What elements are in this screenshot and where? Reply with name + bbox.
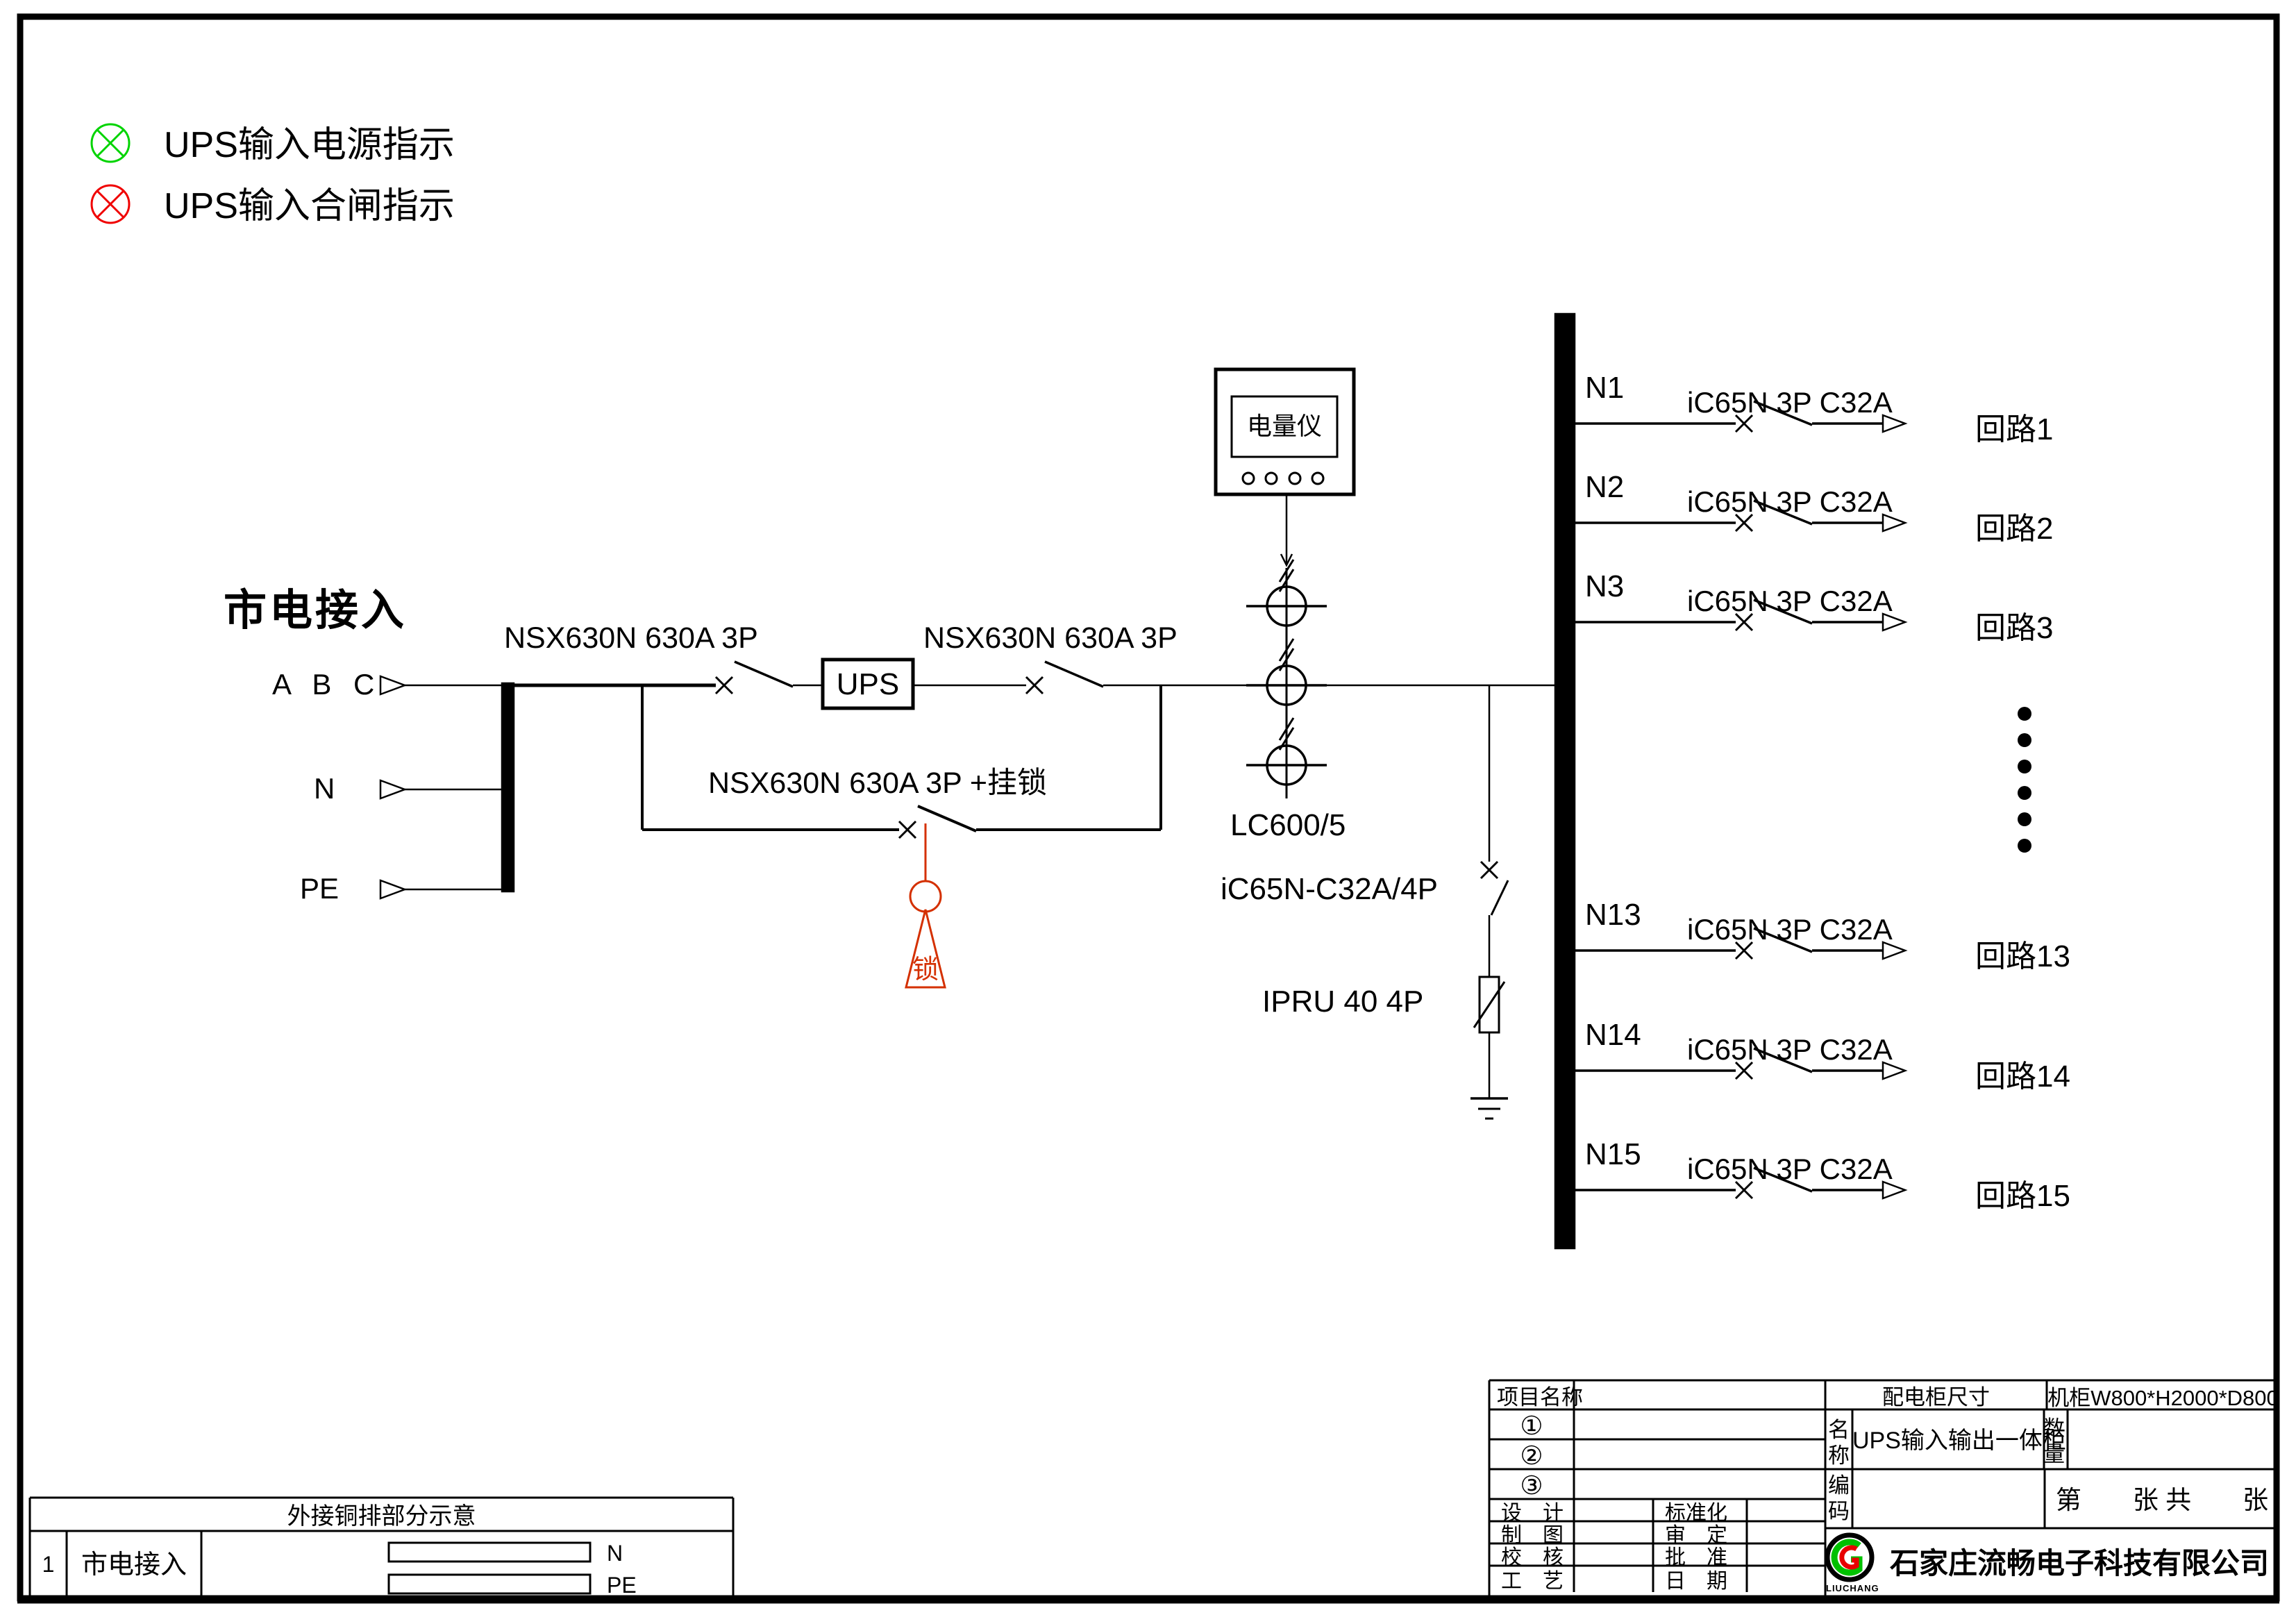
breaker-arm-icon — [918, 806, 976, 831]
power-meter-label: 电量仪 — [1232, 412, 1337, 440]
company-logo-text: LIUCHANG — [1826, 1584, 1879, 1594]
design-label: 设 计 — [1501, 1502, 1564, 1525]
company-name: 石家庄流畅电子科技有限公司 — [1890, 1547, 2269, 1580]
rev2-label: ② — [1489, 1441, 1574, 1470]
breaker-arm-icon — [735, 662, 793, 687]
arrow-pe-icon — [380, 880, 405, 898]
rev3-label: ③ — [1489, 1471, 1574, 1500]
copper-table-row-no: 1 — [30, 1552, 67, 1577]
branch-circuit: 回路13 — [1975, 939, 2070, 973]
branch-breaker: iC65N 3P C32A — [1687, 1033, 1893, 1066]
input-breaker-label: NSX630N 630A 3P — [504, 621, 758, 655]
branch-id: N3 — [1585, 569, 1624, 603]
phase-abc-label: A B C — [272, 668, 381, 701]
qty-label: 数量 — [2043, 1416, 2070, 1467]
arrow-n-icon — [380, 780, 405, 798]
breaker-x-icon — [899, 821, 916, 838]
bypass-breaker-label: NSX630N 630A 3P +挂锁 — [708, 767, 1047, 800]
source-input-arrows — [380, 676, 502, 898]
rev1-label: ① — [1489, 1412, 1574, 1440]
draft-label: 制 图 — [1501, 1524, 1564, 1548]
branch-id: N14 — [1585, 1018, 1641, 1052]
company-logo-icon — [1827, 1535, 1872, 1580]
copper-bar-n — [389, 1543, 590, 1562]
arrow-abc-icon — [380, 676, 405, 694]
copper-bar-n-label: N — [607, 1541, 623, 1566]
ct-label: LC600/5 — [1230, 808, 1346, 842]
page-border — [20, 17, 2277, 1598]
padlock-char: 锁 — [912, 955, 939, 985]
legend-power-indicator-label: UPS输入电源指示 — [164, 125, 455, 165]
mains-input-title: 市电接入 — [224, 587, 407, 635]
input-breaker — [514, 662, 823, 694]
cabinet-size-label: 配电柜尺寸 — [1825, 1386, 2047, 1410]
copper-table-row-label: 市电接入 — [67, 1550, 201, 1580]
copper-bar-pe — [389, 1575, 590, 1593]
branch-breaker: iC65N 3P C32A — [1687, 585, 1893, 617]
standard-label: 标准化 — [1665, 1502, 1727, 1525]
more-circuits-dots — [2018, 707, 2031, 853]
earth-ground-icon — [1470, 1098, 1508, 1119]
branch-id: N13 — [1585, 898, 1641, 932]
output-breaker — [913, 662, 1555, 694]
spd-breaker-label: iC65N-C32A/4P — [1221, 872, 1438, 906]
indicator-lamp-red-icon — [92, 185, 129, 223]
output-busbar — [1555, 314, 1575, 1248]
branch-id: N15 — [1585, 1137, 1641, 1171]
date-label: 日 期 — [1665, 1570, 1727, 1593]
code-label: 编码 — [1828, 1473, 1854, 1524]
ups-label: UPS — [823, 667, 913, 701]
copper-bar-pe-label: PE — [607, 1573, 637, 1598]
pe-label: PE — [300, 872, 339, 905]
breaker-x-icon — [716, 677, 732, 694]
legend-closing-indicator-label: UPS输入合闸指示 — [164, 186, 455, 226]
branch-circuit: 回路14 — [1975, 1060, 2070, 1094]
single-line-diagram — [0, 0, 2296, 1624]
neutral-label: N — [314, 772, 335, 805]
branch-circuit: 回路2 — [1975, 512, 2053, 546]
breaker-x-icon — [1481, 862, 1498, 878]
project-name-label: 项目名称 — [1497, 1386, 1583, 1410]
branch-breaker: iC65N 3P C32A — [1687, 913, 1893, 946]
branch-circuit: 回路1 — [1975, 412, 2053, 446]
branch-id: N2 — [1585, 470, 1624, 504]
breaker-x-icon — [1026, 677, 1043, 694]
spd-branch — [1470, 685, 1508, 1119]
check-label: 校 核 — [1501, 1546, 1564, 1570]
output-breaker-label: NSX630N 630A 3P — [923, 621, 1178, 655]
copper-table-title: 外接铜排部分示意 — [30, 1503, 733, 1530]
spd-label: IPRU 40 4P — [1262, 985, 1423, 1019]
name-value: UPS输入输出一体柜 — [1852, 1428, 2044, 1454]
branch-circuit: 回路3 — [1975, 611, 2053, 645]
current-transformers — [1246, 560, 1327, 798]
breaker-arm-icon — [1045, 662, 1103, 687]
branch-id: N1 — [1585, 371, 1624, 405]
name-label: 名称 — [1828, 1418, 1854, 1468]
branch-breaker: iC65N 3P C32A — [1687, 1153, 1893, 1185]
process-label: 工 艺 — [1501, 1570, 1564, 1593]
sheet-count-label: 第 张 共 张 — [2045, 1486, 2279, 1514]
branch-breaker: iC65N 3P C32A — [1687, 386, 1893, 419]
drawing-page: UPS输入电源指示 UPS输入合闸指示 市电接入 A B C N PE NSX6… — [0, 0, 2296, 1624]
input-busbar — [502, 683, 514, 891]
branch-circuit: 回路15 — [1975, 1179, 2070, 1213]
cabinet-size-value: 机柜W800*H2000*D800 — [2047, 1387, 2279, 1411]
ratify-label: 批 准 — [1665, 1546, 1727, 1570]
breaker-arm-icon — [1491, 880, 1508, 915]
approve-label: 审 定 — [1665, 1524, 1727, 1548]
indicator-lamp-green-icon — [92, 124, 129, 162]
power-meter — [1216, 369, 1354, 565]
branch-breaker: iC65N 3P C32A — [1687, 485, 1893, 518]
